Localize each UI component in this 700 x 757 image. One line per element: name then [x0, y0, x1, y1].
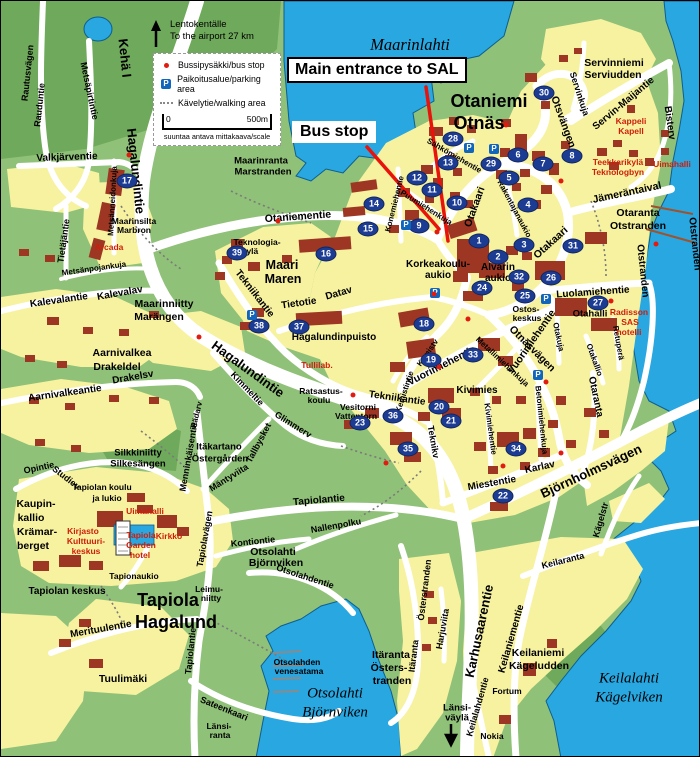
tower-icon — [116, 521, 130, 555]
scale-end: 500m — [247, 114, 268, 124]
bus-stop-annotation: Bus stop — [292, 121, 376, 143]
legend: Bussipysäkki/bus stop P Paikoitusalue/pa… — [153, 53, 281, 146]
legend-parking-label: Paikoitusalue/parking area — [177, 74, 274, 94]
airport-line2: To the airport 27 km — [170, 31, 254, 43]
airport-line1: Lentokentälle — [170, 19, 254, 31]
legend-bus-stop-row: Bussipysäkki/bus stop — [160, 60, 274, 70]
legend-bus-stop-label: Bussipysäkki/bus stop — [178, 60, 265, 70]
scale-start: 0 — [166, 114, 171, 124]
bus-stop-icon — [160, 63, 173, 68]
main-entrance-annotation: Main entrance to SAL — [287, 57, 467, 83]
map: Kehä IHagalundintieHagalundintieRautusvä… — [0, 0, 700, 757]
scale-caption: suuntaa antava mittakaava/scale — [160, 132, 274, 141]
legend-parking-row: P Paikoitusalue/parking area — [160, 74, 274, 94]
north-arrow-block: Lentokentälle To the airport 27 km — [149, 19, 254, 49]
legend-walking-row: Kävelytie/walking area — [160, 98, 274, 108]
map-canvas — [1, 1, 700, 757]
parking-icon: P — [160, 79, 172, 89]
scale-bar: 0 500m — [162, 114, 272, 130]
airport-direction-text: Lentokentälle To the airport 27 km — [170, 19, 254, 43]
walking-path-icon — [160, 102, 173, 104]
north-arrow-icon — [149, 19, 163, 49]
legend-walking-label: Kävelytie/walking area — [178, 98, 266, 108]
